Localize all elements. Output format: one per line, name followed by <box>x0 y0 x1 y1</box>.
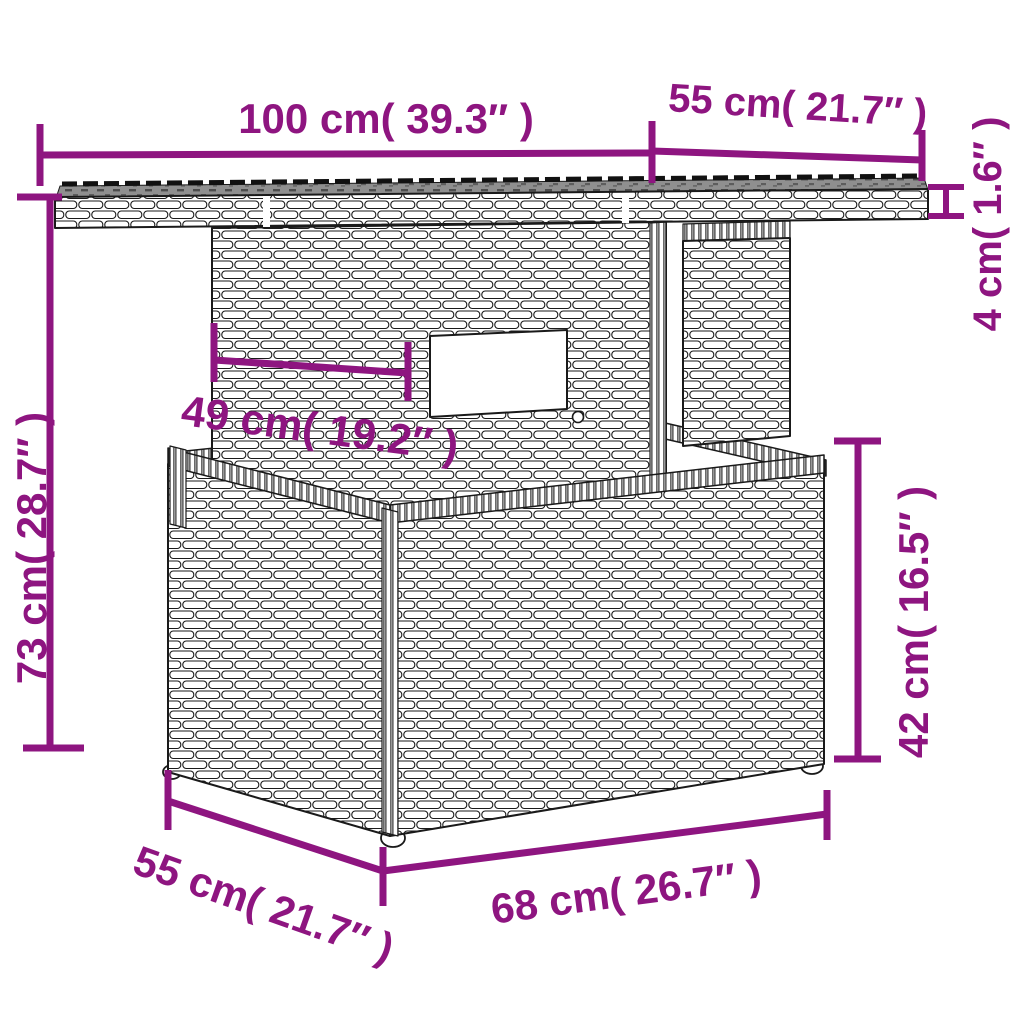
dim-tabletop-thickness <box>928 187 964 216</box>
tabletop-slit-right <box>622 193 629 223</box>
dim-total-height-label: 73 cm( 28.7″ ) <box>8 412 55 684</box>
base-box-front-corner-roll <box>382 508 398 836</box>
tabletop-slit-left <box>263 196 270 227</box>
diagram-canvas: 100 cm( 39.3″ ) 55 cm( 21.7″ ) 4 cm( 1.6… <box>0 0 1024 1024</box>
dim-base-width-label: 68 cm( 26.7″ ) <box>488 851 764 933</box>
product-dimension-diagram: 100 cm( 39.3″ ) 55 cm( 21.7″ ) 4 cm( 1.6… <box>0 0 1024 1024</box>
tabletop-wicker-edge <box>55 189 928 228</box>
dim-tabletop-width-label: 100 cm( 39.3″ ) <box>238 95 534 142</box>
pedestal-corner-roll <box>650 222 666 488</box>
dim-base-depth-label: 55 cm( 21.7″ ) <box>128 837 400 972</box>
dim-tabletop-width-line <box>40 153 652 155</box>
pedestal-right-panel <box>683 238 790 446</box>
table-drawing <box>55 176 928 847</box>
lift-knob <box>573 412 584 423</box>
dim-base-height <box>834 441 881 759</box>
base-box-right-face <box>390 471 824 836</box>
base-box-left-corner-roll <box>170 446 186 528</box>
dim-base-height-label: 42 cm( 16.5″ ) <box>890 486 937 758</box>
pedestal-front-panel <box>212 222 666 514</box>
dim-tabletop-depth <box>652 130 922 181</box>
base-box-left-face <box>168 464 390 836</box>
dim-tabletop-thickness-label: 4 cm( 1.6″ ) <box>966 117 1010 332</box>
dim-tabletop-depth-line <box>652 151 922 160</box>
dim-tabletop-depth-label: 55 cm( 21.7″ ) <box>667 76 928 136</box>
